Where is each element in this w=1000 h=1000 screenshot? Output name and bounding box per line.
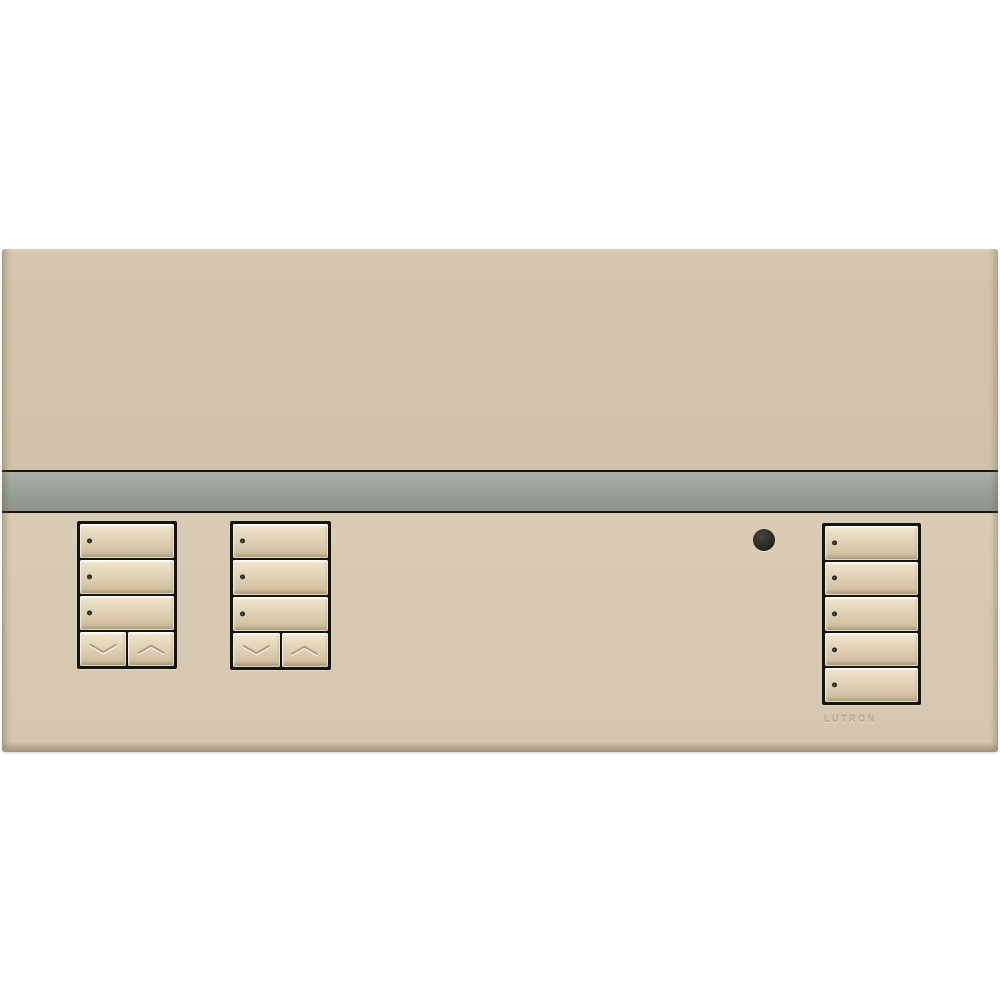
chevron-up-icon (137, 640, 166, 658)
led-indicator (832, 540, 837, 545)
panel-lower-face: LUTRON (2, 513, 998, 752)
brand-logo: LUTRON (824, 714, 877, 724)
keypad-middle-scene-button-3[interactable] (233, 597, 328, 631)
keypad-right-scene-button-5[interactable] (825, 668, 918, 702)
keypad-left-scene-button-2[interactable] (80, 560, 174, 594)
keypad-middle-scene-button-1[interactable] (233, 524, 328, 558)
led-indicator (240, 575, 245, 580)
accent-stripe (2, 470, 998, 513)
keypad-left-lower-button[interactable] (80, 632, 126, 666)
led-indicator (832, 683, 837, 688)
chevron-down-icon (89, 640, 118, 658)
keypad-right (822, 523, 921, 705)
keypad-middle-raise-button[interactable] (282, 633, 329, 667)
keypad-right-scene-button-1[interactable] (825, 526, 918, 560)
keypad-wall-panel: LUTRON (2, 249, 998, 752)
chevron-down-icon (242, 641, 271, 659)
ir-receiver-dot (753, 529, 775, 551)
led-indicator (87, 575, 92, 580)
led-indicator (87, 611, 92, 616)
keypad-left-scene-button-1[interactable] (80, 524, 174, 558)
led-indicator (240, 539, 245, 544)
keypad-middle-lower-button[interactable] (233, 633, 280, 667)
chevron-up-icon (290, 641, 319, 659)
panel-upper-face (2, 249, 998, 470)
led-indicator (832, 576, 837, 581)
led-indicator (87, 539, 92, 544)
keypad-middle-scene-button-2[interactable] (233, 560, 328, 594)
keypad-left (77, 521, 177, 669)
keypad-left-raise-button[interactable] (128, 632, 174, 666)
led-indicator (832, 647, 837, 652)
led-indicator (240, 611, 245, 616)
led-indicator (832, 611, 837, 616)
keypad-right-scene-button-2[interactable] (825, 562, 918, 596)
keypad-left-scene-button-3[interactable] (80, 596, 174, 630)
keypad-right-scene-button-4[interactable] (825, 633, 918, 667)
keypad-right-scene-button-3[interactable] (825, 597, 918, 631)
keypad-middle (230, 521, 331, 670)
